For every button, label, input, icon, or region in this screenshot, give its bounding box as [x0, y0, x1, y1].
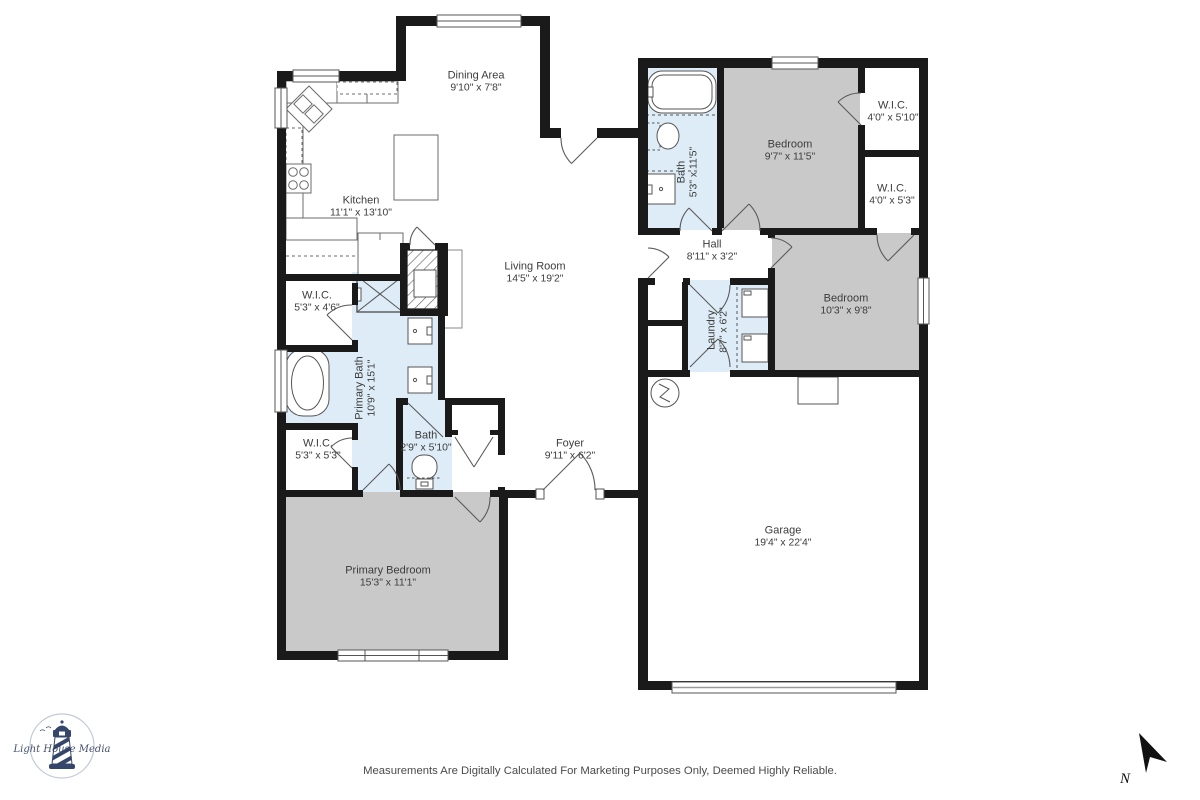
room-label-kitchen: Kitchen11'1" x 13'10": [330, 195, 392, 220]
room-label-primary-bedroom: Primary Bedroom15'3" x 11'1": [345, 565, 431, 590]
room-label-garage: Garage19'4" x 22'4": [755, 525, 812, 550]
floor-plan-page: Light House Media Dining Area9'10" x 7'8…: [0, 0, 1200, 800]
window: [918, 278, 929, 324]
dishwasher-dashed: [286, 128, 302, 164]
door-jamb: [536, 489, 544, 499]
window: [293, 70, 339, 82]
room-label-wic2: W.I.C.4'0" x 5'3": [869, 183, 914, 208]
room-label-dining: Dining Area9'10" x 7'8": [448, 70, 505, 95]
room-label-laundry: Laundry8'7" x 6'2": [706, 307, 731, 352]
room-label-primary-bath: Primary Bath10'9" x 15'1": [354, 356, 379, 420]
soaking-tub-icon: [286, 349, 329, 416]
garage-door: [672, 682, 896, 693]
north-arrow-icon: [1139, 733, 1167, 773]
window: [275, 88, 287, 128]
room-label-bedroom2: Bedroom10'3" x 9'8": [820, 293, 871, 318]
disclaimer-text: Measurements Are Digitally Calculated Fo…: [363, 765, 837, 777]
bathtub-icon: [648, 71, 716, 113]
room-label-living: Living Room14'5" x 19'2": [504, 261, 565, 286]
door-back-patio: [561, 138, 597, 164]
upper-cabinet-dashed: [337, 82, 397, 94]
toilet-icon: [657, 123, 679, 149]
door-pantry: [410, 227, 435, 245]
hvac-platform: [798, 377, 838, 404]
counter-bottom: [286, 218, 357, 240]
window: [338, 650, 448, 661]
cooktop-icon: [286, 164, 311, 193]
room-label-wic1: W.I.C.4'0" x 5'10": [867, 100, 918, 125]
mechanical-unit: [414, 270, 436, 297]
door-jamb: [596, 489, 604, 499]
room-label-bath2: Bath2'9" x 5'10": [400, 430, 451, 455]
tub-faucet-icon: [648, 87, 653, 97]
north-label: N: [1120, 771, 1130, 788]
toilet-icon: [412, 455, 437, 479]
logo-text: Light House Media: [12, 744, 110, 755]
room-label-bedroom1: Bedroom9'7" x 11'5": [765, 139, 815, 164]
window: [437, 15, 521, 27]
window: [275, 350, 287, 412]
closet-bifold-doors: [455, 437, 493, 467]
kitchen-island: [394, 135, 438, 200]
room-label-wic3: W.I.C.5'3" x 4'6": [294, 290, 339, 315]
logo: Light House Media: [12, 714, 110, 778]
room-label-bath1: Bath5'3" x 11'5": [676, 147, 701, 197]
room-label-foyer: Foyer9'11" x 6'2": [545, 438, 595, 463]
door-hall: [648, 248, 669, 278]
room-label-wic4: W.I.C.5'3" x 5'3": [295, 438, 340, 463]
room-label-hall: Hall8'11" x 3'2": [687, 239, 737, 264]
mechanical-closet: [407, 250, 438, 309]
window: [772, 57, 818, 69]
floor-plan-drawing: Light House Media: [0, 0, 1200, 800]
